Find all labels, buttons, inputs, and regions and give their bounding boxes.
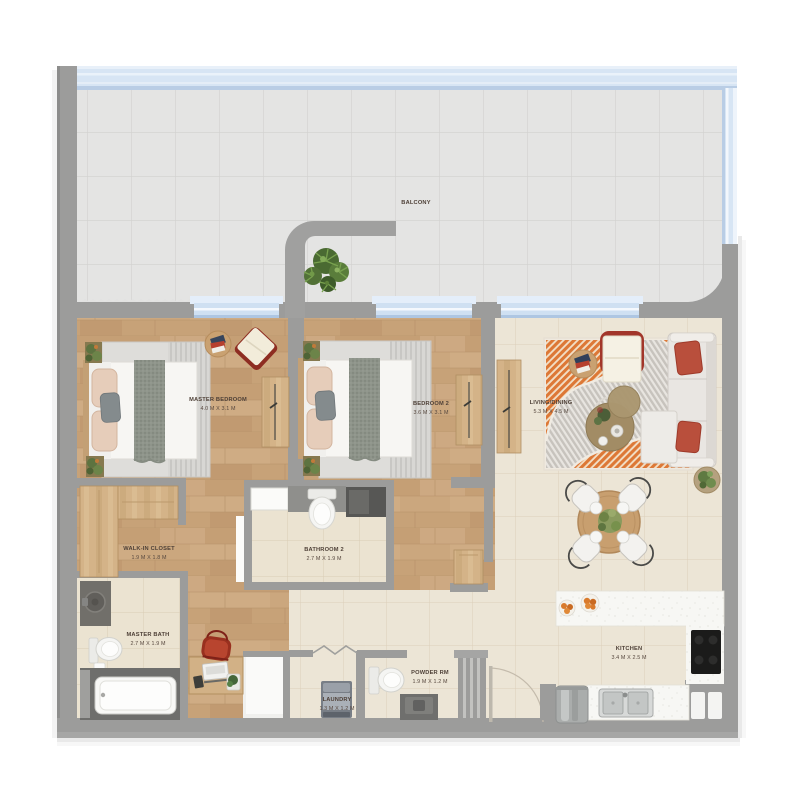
svg-text:BEDROOM 2: BEDROOM 2 bbox=[413, 401, 449, 407]
svg-text:5.3 M X 4.5 M: 5.3 M X 4.5 M bbox=[533, 409, 569, 415]
svg-text:1.9 M X 1.2 M: 1.9 M X 1.2 M bbox=[412, 679, 448, 685]
svg-text:2.7 M X 1.9 M: 2.7 M X 1.9 M bbox=[306, 556, 342, 562]
svg-text:2.7 M X 1.9 M: 2.7 M X 1.9 M bbox=[130, 641, 166, 647]
svg-text:KITCHEN: KITCHEN bbox=[616, 646, 643, 652]
svg-text:1.9 M X 1.8 M: 1.9 M X 1.8 M bbox=[131, 555, 167, 561]
svg-text:3.4 M X 2.5 M: 3.4 M X 2.5 M bbox=[611, 655, 647, 661]
svg-text:3.6 M X 3.1 M: 3.6 M X 3.1 M bbox=[413, 410, 449, 416]
svg-text:1.3 M X 1.2 M: 1.3 M X 1.2 M bbox=[319, 706, 355, 712]
svg-text:WALK-IN CLOSET: WALK-IN CLOSET bbox=[123, 546, 175, 552]
svg-text:POWDER RM: POWDER RM bbox=[411, 670, 449, 676]
svg-text:BATHROOM 2: BATHROOM 2 bbox=[304, 547, 344, 553]
svg-text:MASTER BATH: MASTER BATH bbox=[127, 632, 170, 638]
svg-text:MASTER BEDROOM: MASTER BEDROOM bbox=[189, 397, 247, 403]
svg-text:4.0 M X 3.1 M: 4.0 M X 3.1 M bbox=[200, 406, 236, 412]
svg-text:BALCONY: BALCONY bbox=[401, 200, 430, 206]
svg-text:LAUNDRY: LAUNDRY bbox=[323, 697, 352, 703]
svg-text:LIVING/DINING: LIVING/DINING bbox=[530, 400, 573, 406]
